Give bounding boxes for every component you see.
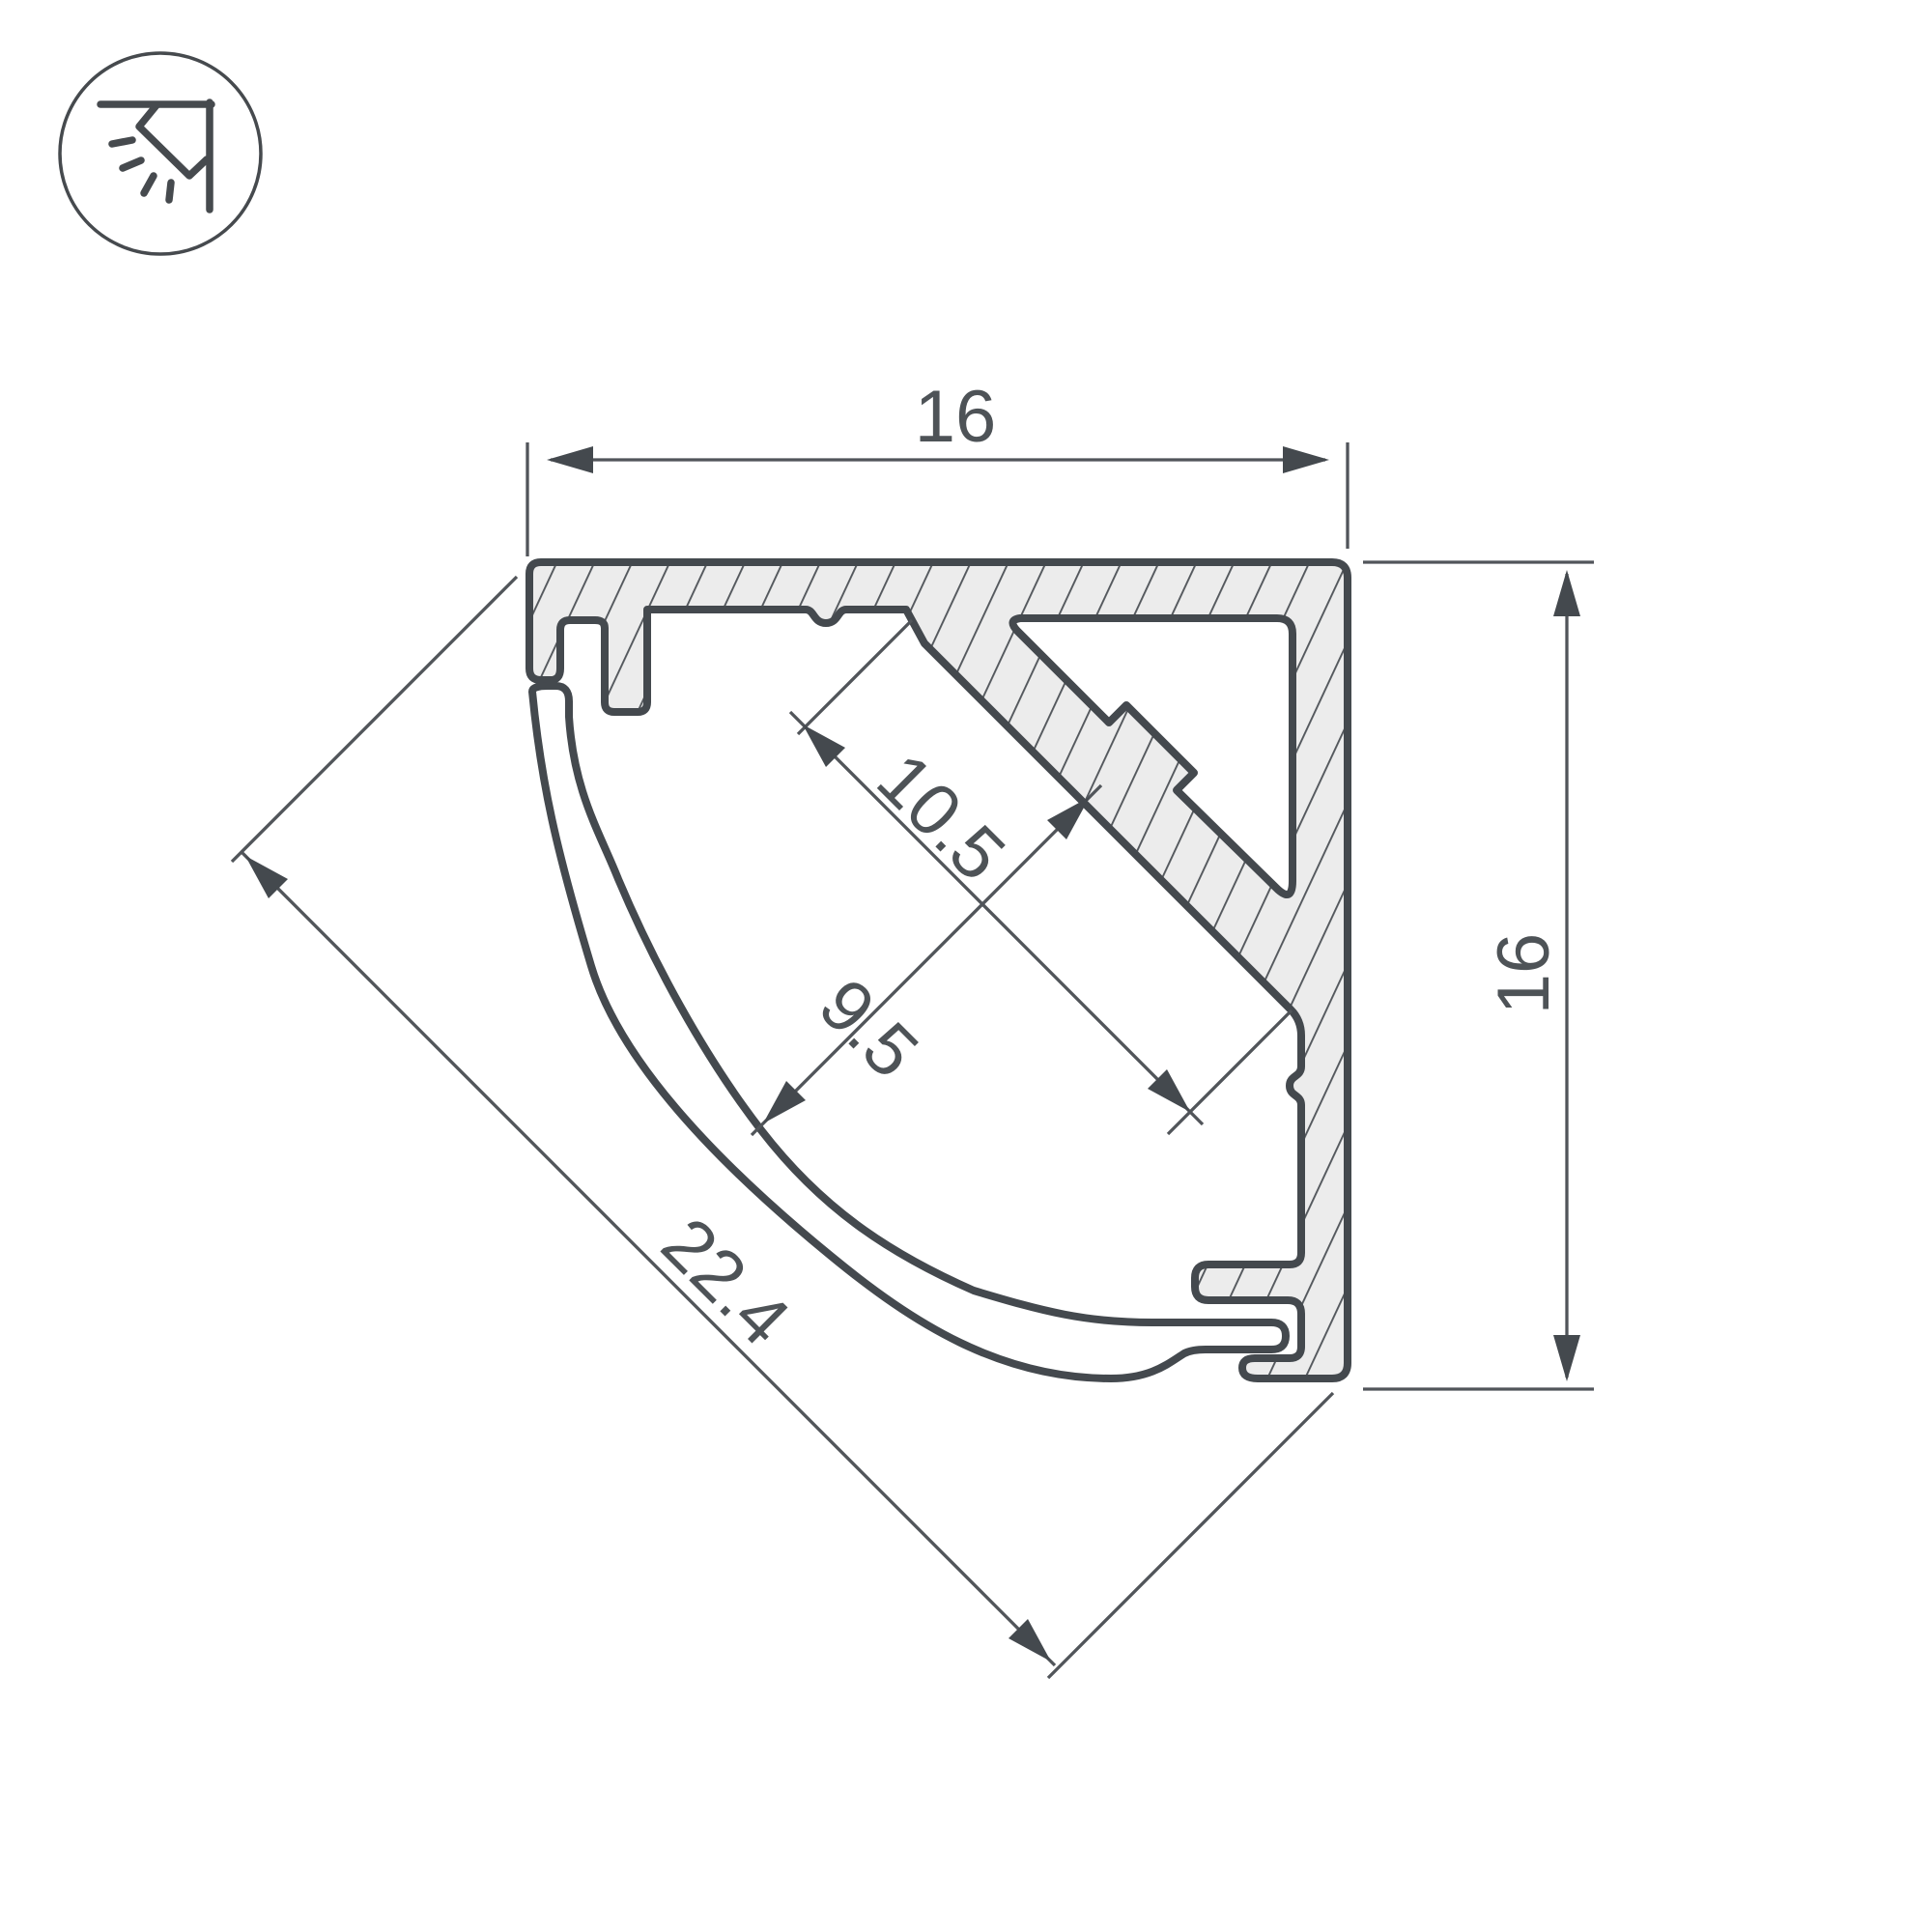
svg-text:16: 16 <box>915 376 997 458</box>
svg-text:16: 16 <box>1483 933 1565 1015</box>
